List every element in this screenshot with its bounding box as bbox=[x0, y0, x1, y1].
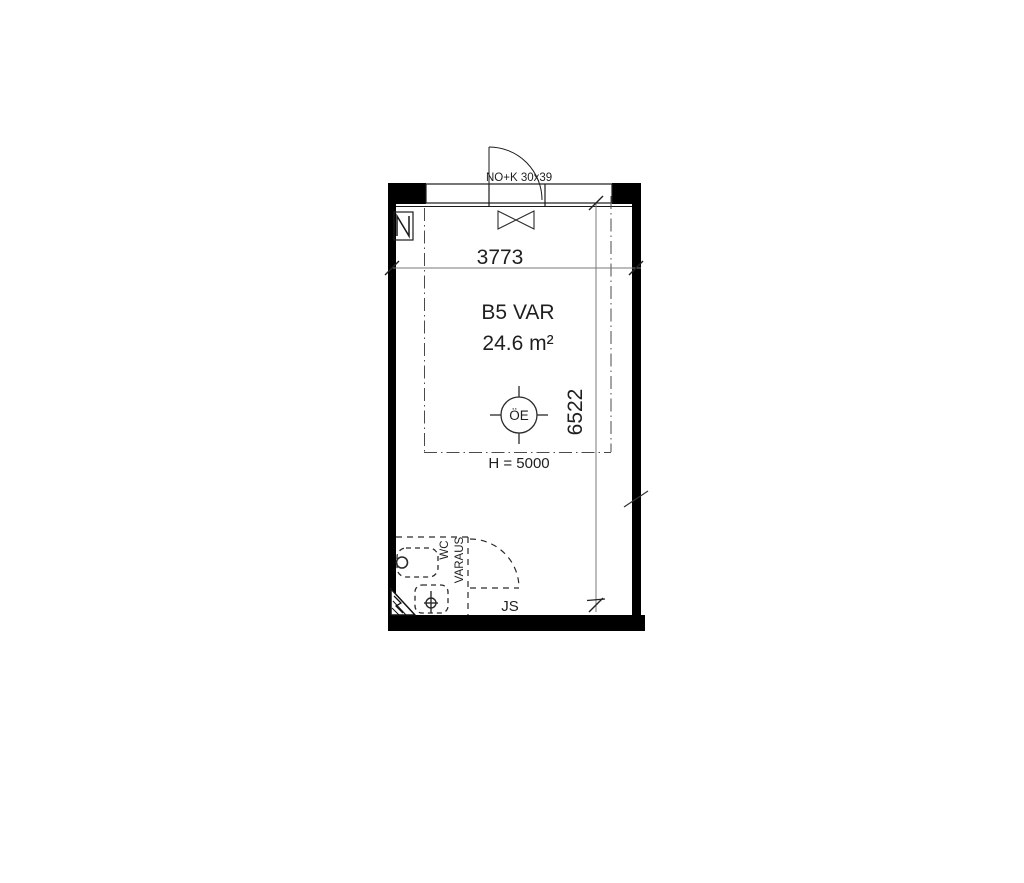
wall-top-left-block bbox=[388, 183, 426, 204]
valve-bowtie-icon bbox=[498, 211, 534, 229]
electrical-panel-icon bbox=[394, 212, 413, 240]
door-label: NO+K 30x39 bbox=[486, 172, 552, 184]
room-area-label: 24.6 m² bbox=[482, 332, 553, 355]
sink-icon bbox=[415, 585, 448, 613]
dimension-height: 6522 bbox=[564, 196, 605, 612]
dimension-height-text: 6522 bbox=[564, 389, 587, 436]
floor-plan-page: NO+K 30x39 3773 6522 B5 VAR 24.6 m² H = … bbox=[0, 0, 1024, 883]
js-label: JS bbox=[501, 598, 519, 615]
wall-right bbox=[632, 204, 641, 615]
dimension-tick-bottom-bar bbox=[587, 599, 605, 601]
dimension-width: 3773 bbox=[385, 246, 643, 275]
reservation-label: VARAUS bbox=[454, 536, 466, 583]
room-name-label: B5 VAR bbox=[481, 301, 554, 324]
toilet-icon bbox=[397, 548, 439, 577]
ceiling-fixture-label: ÖE bbox=[509, 408, 529, 423]
room-height-label: H = 5000 bbox=[488, 455, 549, 472]
floor-plan-drawing: NO+K 30x39 3773 6522 B5 VAR 24.6 m² H = … bbox=[0, 0, 1024, 883]
wall-top-right-block bbox=[612, 183, 641, 204]
wc-door-swing bbox=[470, 539, 519, 588]
top-wall-band bbox=[396, 184, 632, 207]
wc-door-swing-arc bbox=[470, 539, 519, 588]
floor-drain-icon bbox=[391, 589, 415, 615]
dimension-width-text: 3773 bbox=[477, 246, 524, 269]
wc-label: WC bbox=[439, 540, 451, 559]
wall-bottom bbox=[388, 615, 645, 631]
